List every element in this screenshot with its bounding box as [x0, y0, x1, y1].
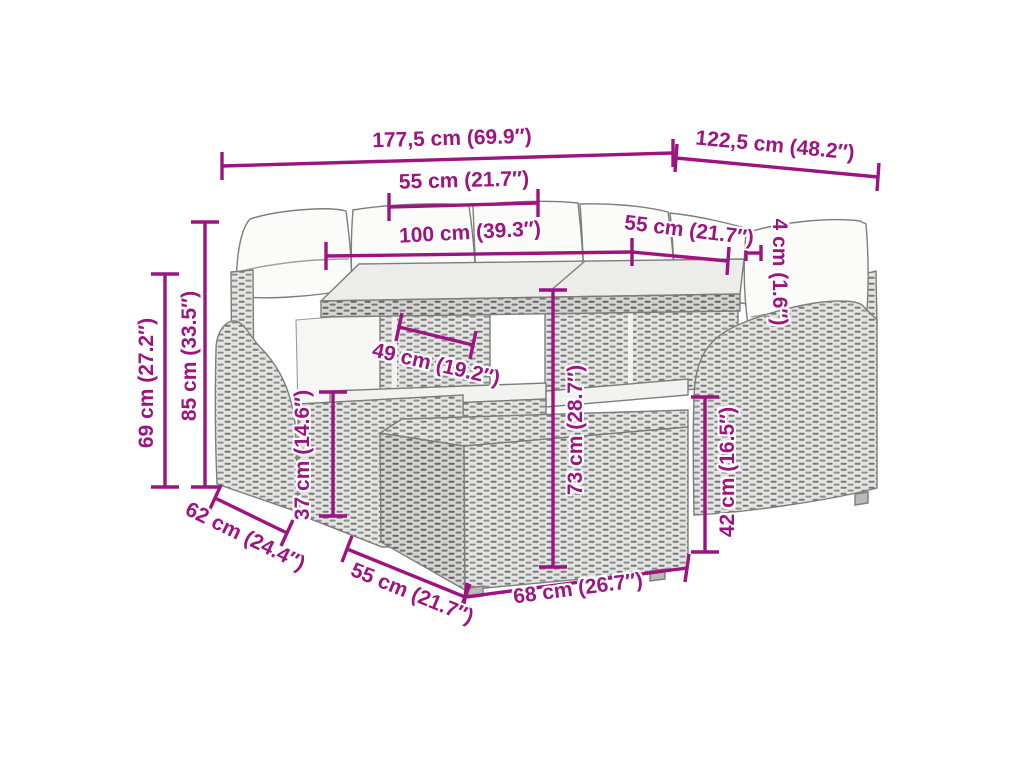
table-top [321, 259, 744, 317]
dim-label-tabletop-thickness: 4 cm (1.6″) [767, 219, 791, 326]
dim-label-total-height: 85 cm (33.5″) [178, 291, 202, 421]
dim-label-seat-height: 37 cm (14.6″) [291, 390, 315, 520]
dim-label-total-length: 177,5 cm (69.9″) [372, 125, 532, 153]
dim-label-armrest-height: 69 cm (27.2″) [135, 318, 159, 448]
left-armrest [215, 321, 298, 512]
dim-label-table-height: 73 cm (28.7″) [564, 365, 588, 495]
bench [380, 410, 688, 590]
foot [855, 492, 868, 505]
diagram-canvas: 177,5 cm (69.9″) 122,5 cm (48.2″) 55 cm … [0, 0, 1024, 768]
back-cushion [237, 209, 352, 298]
dim-label-left-seat-width: 55 cm (21.7″) [399, 167, 530, 194]
dim-label-bench-height: 42 cm (16.5″) [716, 407, 740, 537]
